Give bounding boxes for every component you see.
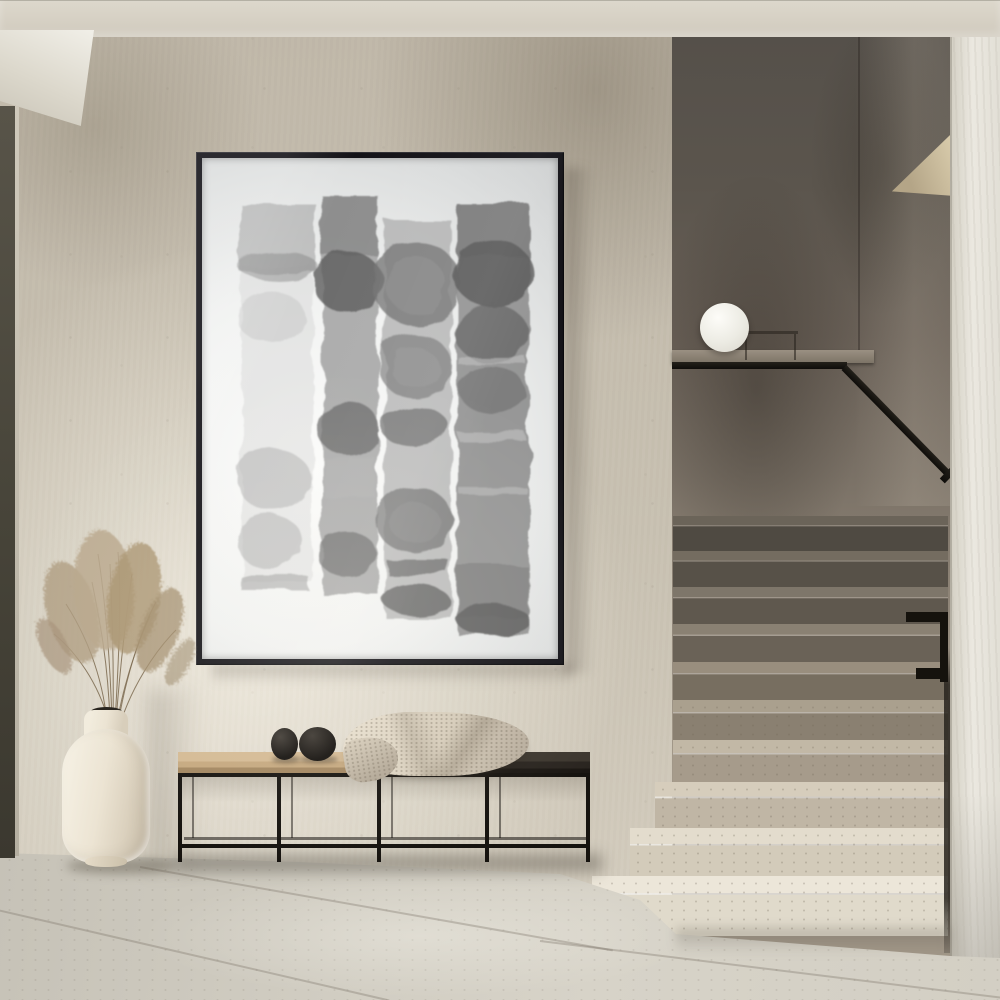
door-frame: [0, 106, 15, 858]
grout-line: [140, 866, 613, 951]
bench-leg: [586, 774, 590, 862]
bench-rear-leg: [391, 776, 393, 838]
handrail-horizontal: [672, 362, 847, 369]
bench-rear-leg: [291, 776, 293, 838]
stairwell-corner-edge: [858, 36, 860, 356]
lower-handrail-bracket: [906, 612, 948, 682]
artwork-frame: [196, 152, 564, 665]
bench-rear-leg: [499, 776, 501, 838]
ceiling: [0, 0, 1000, 37]
grass-plumes: [29, 528, 201, 690]
stair-base-shadow: [676, 928, 950, 954]
stairwell-lit-wall: [855, 36, 953, 506]
bench-floor-shadow: [176, 854, 602, 872]
bench-leg: [485, 774, 489, 862]
bench-leg: [377, 774, 381, 862]
pebble-small: [271, 728, 298, 760]
ledge-table-silhouette: [744, 331, 798, 361]
stair-step: [673, 516, 948, 551]
pampas-grass: [14, 512, 204, 727]
bracket-arm: [916, 668, 948, 679]
watercolor-strip-3: [372, 220, 460, 618]
bench-rear-leg: [192, 776, 194, 838]
stair-step: [673, 740, 948, 782]
stair-step: [673, 700, 948, 740]
vase-foot: [85, 856, 127, 867]
table-top: [744, 331, 798, 334]
watercolor-strip-4: [453, 204, 533, 635]
right-pillar: [950, 18, 1000, 962]
bracket-arm: [906, 612, 948, 622]
bench-wall-shadow: [180, 776, 590, 802]
bench-rear-stretcher: [184, 837, 586, 840]
stair-step: [630, 828, 948, 876]
stair-step: [673, 551, 948, 587]
interior-scene: [0, 0, 1000, 1000]
watercolor-strip-1: [237, 204, 318, 589]
artwork-cast-shadow: [212, 664, 572, 684]
artwork-paper: [202, 158, 558, 659]
bench-leg: [178, 774, 182, 862]
watercolor-painting: [202, 158, 558, 659]
stair-step: [655, 782, 948, 828]
bench-leg: [277, 774, 281, 862]
watercolor-strip-2: [313, 196, 383, 594]
artwork-cast-shadow: [565, 168, 593, 673]
table-leg: [794, 334, 796, 360]
sphere-lamp: [700, 303, 749, 352]
bench-stretcher: [178, 844, 590, 848]
grout-line: [0, 905, 389, 1000]
ceramic-vase: [62, 729, 150, 863]
door-frame-edge: [15, 106, 19, 856]
pebble-large: [299, 727, 336, 761]
